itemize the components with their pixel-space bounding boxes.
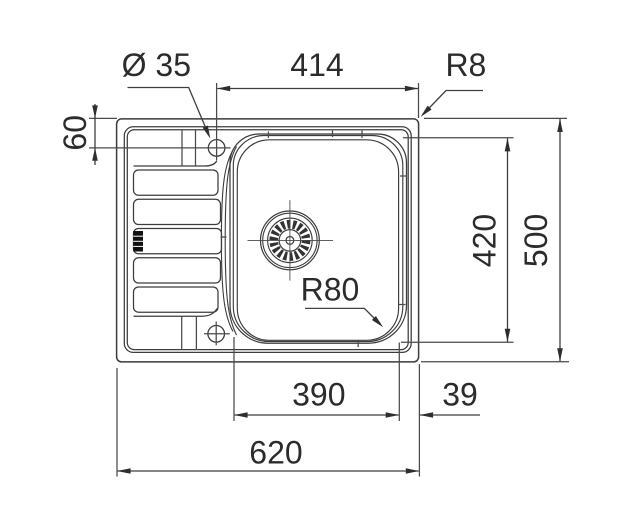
svg-text:390: 390	[292, 377, 345, 413]
svg-text:620: 620	[249, 435, 302, 471]
svg-text:R8: R8	[445, 47, 486, 83]
svg-text:420: 420	[466, 214, 502, 267]
svg-text:414: 414	[290, 47, 343, 83]
svg-text:R80: R80	[301, 272, 360, 308]
svg-text:Ø 35: Ø 35	[122, 47, 191, 83]
svg-text:39: 39	[442, 377, 478, 413]
svg-text:500: 500	[518, 214, 554, 267]
svg-text:60: 60	[57, 115, 93, 151]
